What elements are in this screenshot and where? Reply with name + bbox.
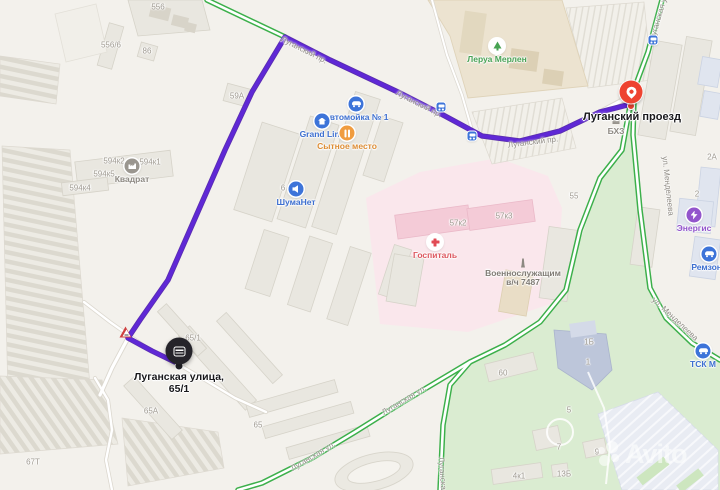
building-number-label: 7	[557, 443, 561, 452]
building-number-label: 5	[567, 406, 571, 415]
carwash-icon	[349, 97, 364, 112]
building-number-label: 594к4	[69, 184, 90, 193]
sytnoe-icon	[340, 126, 355, 141]
building-number-label: 556	[151, 3, 164, 12]
rail-crossing-icon	[120, 327, 133, 338]
street-name-label: ул. Менделеева	[650, 295, 700, 342]
destination-label-line1: Луганская улица,	[134, 371, 224, 383]
building-number-label: 1	[586, 358, 590, 367]
grandline-label: Grand Line	[300, 129, 345, 139]
avito-logo-icon	[598, 440, 622, 468]
building-number-label: 594к1	[139, 158, 160, 167]
bus-stop-icon[interactable]	[437, 103, 446, 112]
street-name-label: Луганский пр.	[507, 134, 558, 149]
gospital-label: Госпиталь	[413, 250, 457, 260]
house-icon-glyph	[318, 118, 326, 125]
building-number-label: 67Т	[26, 458, 40, 467]
avito-watermark: Avito	[598, 440, 687, 469]
bolt-icon-glyph	[691, 211, 698, 220]
car-icon-glyph	[699, 348, 708, 353]
bhz-label: БХЗ	[608, 126, 625, 136]
leroy-label: Леруа Мерлен	[467, 54, 526, 64]
bus-stop-icon[interactable]	[468, 132, 477, 141]
shumanet-icon	[289, 182, 304, 197]
building-number-label: 59А	[230, 92, 244, 101]
memorial-label2: в/ч 7487	[506, 277, 540, 287]
building-number-label: 13Б	[557, 470, 571, 479]
car-icon-glyph	[352, 101, 361, 106]
point-marker-label: Луганский проезд	[583, 111, 681, 123]
energis-icon	[687, 208, 702, 223]
carwash-label: Автомойка № 1	[324, 112, 389, 122]
tsk-icon	[696, 344, 711, 359]
point-marker[interactable]	[620, 81, 643, 104]
building-number-label: 4к1	[513, 472, 525, 481]
destination-marker[interactable]	[166, 338, 193, 365]
sound-icon-glyph	[292, 185, 300, 193]
street-name-label: Луганская ул.	[289, 439, 337, 473]
building-number-label: 86	[143, 47, 152, 56]
building-number-label: 1Б	[584, 338, 594, 347]
kvadrat-label: Квадрат	[115, 174, 150, 184]
shumanet-label: ШумаНет	[277, 197, 316, 207]
tree-icon-glyph	[492, 41, 502, 51]
building-number-label: 594к2	[103, 157, 124, 166]
street-name-label: ул. Менделеева	[660, 156, 675, 216]
building-number-label: 60	[499, 369, 508, 378]
remzona-icon	[702, 247, 717, 262]
factory-icon-glyph	[128, 163, 136, 169]
food-icon-glyph	[344, 129, 346, 137]
building-number-label: 65А	[144, 407, 158, 416]
building-number-label: 2	[695, 190, 699, 199]
building-number-label: 57к2	[450, 219, 467, 228]
building-number-label: 57к3	[496, 212, 513, 221]
building-number-label: 556/6	[101, 41, 121, 50]
building-number-label: 2А	[707, 153, 717, 162]
monument-icon-glyph	[521, 259, 525, 268]
labels-layer: 556556/68659А594к2594к1594к5594к4657к257…	[0, 0, 720, 490]
destination-label-line2: 65/1	[134, 383, 224, 395]
car-icon-glyph	[705, 251, 714, 256]
building-number-label: 6	[281, 184, 285, 193]
kvadrat-icon	[125, 159, 140, 174]
street-name-label: Луганский пр.	[279, 34, 328, 65]
leroy-icon	[490, 39, 505, 54]
building-number-label: 65	[254, 421, 263, 430]
grandline-icon	[315, 114, 330, 129]
gospital-icon	[428, 235, 443, 250]
building-number-label: 55	[570, 192, 579, 201]
tsk-label: ТСК М	[690, 359, 716, 369]
cross-icon-glyph	[431, 238, 439, 246]
avito-watermark-text: Avito	[625, 440, 687, 469]
map-view[interactable]: 556556/68659А594к2594к1594к5594к4657к257…	[0, 0, 720, 490]
bus-stop-icon[interactable]	[649, 36, 658, 45]
memorial-icon	[518, 258, 528, 268]
sytnoe-label: Сытное место	[317, 141, 377, 151]
destination-marker-label: Луганская улица, 65/1	[134, 371, 224, 395]
point-marker-icon	[624, 84, 638, 98]
energis-label: Энергис	[677, 223, 712, 233]
building-number-label: 594к5	[93, 170, 114, 179]
street-name-label: Луганская ул.	[437, 457, 449, 490]
remzona-label: Ремзона	[691, 262, 720, 272]
garage-icon	[173, 346, 185, 356]
street-name-label: Луганская ул.	[380, 383, 428, 417]
